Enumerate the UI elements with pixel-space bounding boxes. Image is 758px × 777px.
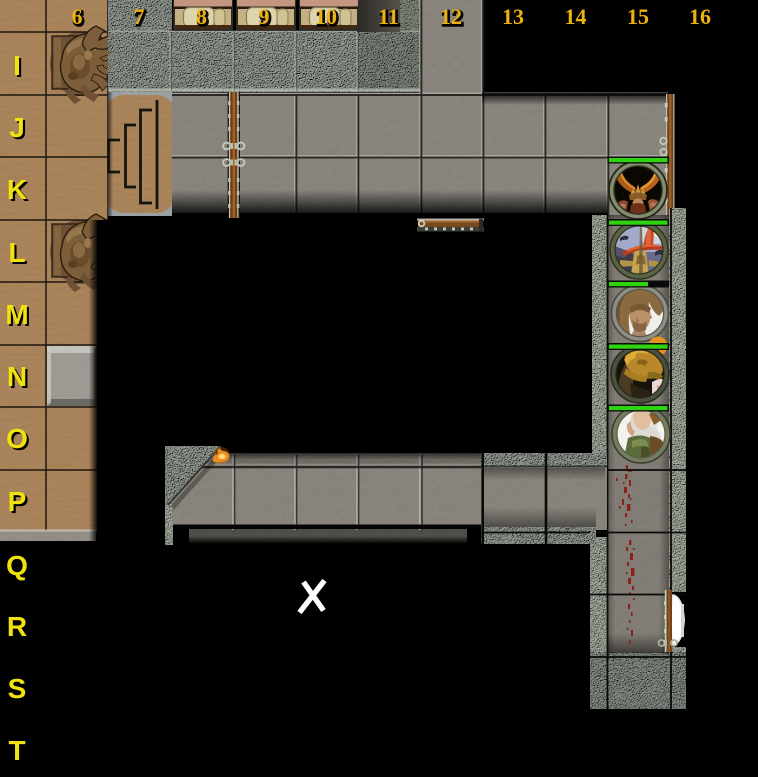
svg-text:T: T bbox=[8, 735, 25, 766]
svg-text:Q: Q bbox=[6, 550, 28, 581]
svg-text:J: J bbox=[9, 112, 25, 143]
svg-text:I: I bbox=[13, 50, 21, 81]
svg-text:6: 6 bbox=[72, 4, 83, 29]
svg-text:M: M bbox=[5, 299, 28, 330]
svg-text:9: 9 bbox=[259, 4, 270, 29]
svg-text:14: 14 bbox=[565, 4, 587, 29]
svg-text:K: K bbox=[7, 174, 27, 205]
svg-text:7: 7 bbox=[134, 4, 145, 29]
svg-text:N: N bbox=[7, 361, 27, 392]
svg-text:O: O bbox=[6, 423, 28, 454]
svg-text:10: 10 bbox=[315, 4, 337, 29]
svg-text:8: 8 bbox=[196, 4, 207, 29]
svg-text:L: L bbox=[8, 237, 25, 268]
svg-text:11: 11 bbox=[378, 4, 399, 29]
svg-text:13: 13 bbox=[502, 4, 524, 29]
svg-text:12: 12 bbox=[440, 4, 462, 29]
svg-text:16: 16 bbox=[689, 4, 711, 29]
svg-text:P: P bbox=[8, 486, 27, 517]
svg-text:15: 15 bbox=[627, 4, 649, 29]
svg-text:S: S bbox=[8, 673, 27, 704]
svg-text:R: R bbox=[7, 611, 27, 642]
